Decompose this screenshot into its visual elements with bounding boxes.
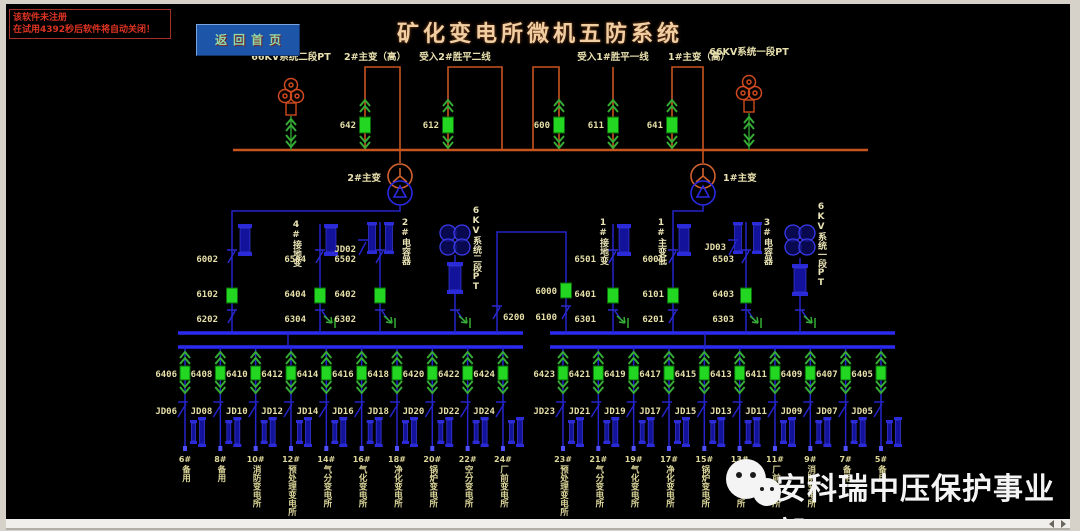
bay-pt-66kv-section2: 66KV系统二段PT bbox=[251, 51, 331, 150]
breaker-6402-label: 6402 bbox=[334, 290, 356, 300]
bay-pt-6kv-section1 bbox=[785, 225, 815, 333]
label-grounding-transformer-1: 1#接地变 bbox=[597, 218, 609, 265]
feeder-name-JD16: 16#气化变电所 bbox=[351, 455, 373, 508]
breaker-6409[interactable] bbox=[805, 366, 815, 380]
feeder-bay-JD16[interactable]: 6416JD16 bbox=[332, 347, 383, 451]
breaker-label: 6417 bbox=[639, 370, 661, 380]
jd-switch-label: JD18 bbox=[367, 407, 389, 417]
feeder-name-JD23: 23#预处理变电所 bbox=[552, 455, 574, 516]
breaker-642[interactable] bbox=[360, 117, 371, 133]
breaker-600-label: 600 bbox=[534, 121, 550, 131]
switch-6202-label: 6202 bbox=[196, 315, 218, 325]
feeder-number: 14# bbox=[315, 455, 337, 465]
feeder-symbol bbox=[662, 347, 690, 451]
breaker-label: 6423 bbox=[533, 370, 555, 380]
feeder-bay-JD21[interactable]: 6421JD21 bbox=[569, 347, 620, 451]
earth-switch-6301[interactable] bbox=[608, 310, 628, 328]
feeder-substation-name: 备用 bbox=[215, 465, 226, 482]
feeder-bay-JD15[interactable]: 6415JD15 bbox=[675, 347, 726, 451]
breaker-6411[interactable] bbox=[770, 366, 780, 380]
feeder-name-JD15: 15#锅炉变电所 bbox=[693, 455, 715, 508]
pt-66kv-1-icon bbox=[737, 76, 762, 100]
feeder-symbol bbox=[697, 347, 725, 451]
switch-6002-label: 6002 bbox=[196, 255, 218, 265]
jd-switch-label: JD24 bbox=[473, 407, 495, 417]
bay-bus-tie-66kv: 600 bbox=[533, 67, 565, 150]
breaker-label: 6414 bbox=[297, 370, 319, 380]
breaker-6101[interactable] bbox=[668, 288, 679, 303]
page-title: 矿化变电所微机五防系统 bbox=[200, 16, 880, 48]
breaker-6403[interactable] bbox=[741, 288, 752, 303]
pt-box bbox=[447, 262, 463, 294]
trial-warning: 该软件未注册 在试用4392秒后软件将自动关闭！ bbox=[9, 9, 171, 39]
breaker-label: 6420 bbox=[403, 370, 425, 380]
feeder-symbol bbox=[319, 347, 347, 451]
breaker-label: 6419 bbox=[604, 370, 626, 380]
feeder-symbol bbox=[874, 347, 902, 451]
feeder-name-JD22: 22#空分变电所 bbox=[457, 455, 479, 508]
breaker-6421[interactable] bbox=[593, 366, 603, 380]
breaker-6401-label: 6401 bbox=[574, 290, 596, 300]
breaker-6419[interactable] bbox=[629, 366, 639, 380]
feeder-substation-name: 预处理变电所 bbox=[558, 465, 569, 516]
breaker-6401[interactable] bbox=[608, 288, 619, 303]
feeder-name-JD08: 8#备用 bbox=[209, 455, 231, 482]
scroll-right-icon[interactable] bbox=[1061, 520, 1066, 528]
scroll-left-icon[interactable] bbox=[1049, 520, 1054, 528]
breaker-label: 6421 bbox=[569, 370, 591, 380]
feeder-name-JD10: 10#消防变电所 bbox=[245, 455, 267, 508]
feeder-bay-JD06[interactable]: 6406JD06 bbox=[155, 347, 206, 451]
capacitor-icon bbox=[384, 222, 394, 254]
jd-switch-label: JD19 bbox=[604, 407, 626, 417]
feeder-substation-name: 消防变电所 bbox=[250, 465, 261, 508]
transformer-1: 1#主变 bbox=[691, 164, 757, 205]
cabinet-icon bbox=[617, 224, 631, 256]
switch-6502-label: 6502 bbox=[334, 255, 356, 265]
transformer-1-label: 1#主变 bbox=[723, 172, 757, 184]
label-capacitor-3: 3#电容器 bbox=[761, 218, 773, 265]
jd-switch-label: JD06 bbox=[155, 407, 177, 417]
cabinet-icon bbox=[677, 224, 691, 256]
breaker-label: 6407 bbox=[816, 370, 838, 380]
pt-box bbox=[286, 103, 296, 115]
feeder-number: 23# bbox=[552, 455, 574, 465]
feeder-bay-JD11[interactable]: 6411JD11 bbox=[745, 347, 796, 451]
bay-label: 2#主变（高） bbox=[344, 51, 406, 63]
jd-switch-label: JD23 bbox=[533, 407, 555, 417]
pt-66kv-2-icon bbox=[279, 79, 304, 103]
feeder-name-JD17: 17#净化变电所 bbox=[658, 455, 680, 508]
breaker-label: 6406 bbox=[155, 370, 177, 380]
feeder-name-JD19: 19#气化变电所 bbox=[623, 455, 645, 508]
feeder-symbol bbox=[768, 347, 796, 451]
trial-warning-line2: 在试用4392秒后软件将自动关闭！ bbox=[13, 24, 167, 36]
breaker-6420[interactable] bbox=[427, 366, 437, 380]
feeder-number: 16# bbox=[351, 455, 373, 465]
feeder-symbol bbox=[839, 347, 867, 451]
switch-jd02-label: JD02 bbox=[334, 245, 356, 255]
feeder-bay-JD22[interactable]: 6422JD22 bbox=[438, 347, 489, 451]
pt-6kv-2-icon bbox=[440, 225, 470, 255]
feeder-bay-JD07[interactable]: 6407JD07 bbox=[816, 347, 867, 451]
breaker-612-label: 612 bbox=[423, 121, 439, 131]
breaker-label: 6424 bbox=[473, 370, 495, 380]
transformer-lv-winding-icon bbox=[691, 181, 715, 205]
feeder-substation-name: 空分变电所 bbox=[462, 465, 473, 508]
feeder-bay-JD08[interactable]: 6408JD08 bbox=[191, 347, 242, 451]
feeder-symbol bbox=[178, 347, 206, 451]
feeder-substation-name: 气分变电所 bbox=[321, 465, 332, 508]
feeder-symbol bbox=[355, 347, 383, 451]
jd-switch-label: JD20 bbox=[403, 407, 425, 417]
earth-switch-6301-label: 6301 bbox=[574, 315, 596, 325]
scada-canvas: 66KV系统二段PT 642 2#主变（高） 612 受入2#胜平二 bbox=[6, 4, 1070, 519]
feeder-symbol bbox=[627, 347, 655, 451]
breaker-6406[interactable] bbox=[180, 366, 190, 380]
breaker-label: 6416 bbox=[332, 370, 354, 380]
feeder-number: 22# bbox=[457, 455, 479, 465]
breaker-6424[interactable] bbox=[498, 366, 508, 380]
breaker-6102[interactable] bbox=[227, 288, 238, 303]
breaker-label: 6418 bbox=[367, 370, 389, 380]
breaker-6404-label: 6404 bbox=[284, 290, 306, 300]
bay-main-transformer-2-lv: 6002 6102 6202 bbox=[196, 224, 252, 325]
capacitor-icon bbox=[367, 222, 377, 254]
breaker-6403-label: 6403 bbox=[712, 290, 734, 300]
bay-main-transformer-2-hv: 642 2#主变（高） bbox=[340, 51, 406, 163]
bay-capacitor-2: JD02 6502 6402 6302 bbox=[334, 222, 395, 333]
breaker-6422[interactable] bbox=[463, 366, 473, 380]
jd-switch-label: JD05 bbox=[851, 407, 873, 417]
breaker-6423[interactable] bbox=[558, 366, 568, 380]
breaker-6418[interactable] bbox=[392, 366, 402, 380]
feeder-symbol bbox=[556, 347, 584, 451]
breaker-label: 6415 bbox=[675, 370, 697, 380]
breaker-641[interactable] bbox=[667, 117, 678, 133]
feeder-substation-name: 备用 bbox=[180, 465, 191, 482]
feeder-symbol bbox=[803, 347, 831, 451]
bay-label: 受入1#胜平一线 bbox=[577, 51, 649, 63]
breaker-600[interactable] bbox=[554, 117, 565, 133]
label-main-transformer-1-lv: 1#主变低 bbox=[655, 218, 667, 265]
jd-switch-label: JD21 bbox=[569, 407, 591, 417]
feeder-number: 8# bbox=[209, 455, 231, 465]
feeder-substation-name: 厂前变电所 bbox=[497, 465, 508, 508]
jd-switch-label: JD13 bbox=[710, 407, 732, 417]
switch-6100-label: 6100 bbox=[535, 313, 557, 323]
breaker-641-label: 641 bbox=[647, 121, 663, 131]
breaker-6000[interactable] bbox=[561, 283, 572, 298]
label-capacitor-2: 2#电容器 bbox=[399, 218, 411, 265]
breaker-label: 6411 bbox=[745, 370, 767, 380]
feeder-substation-name: 锅炉变电所 bbox=[427, 465, 438, 508]
feeder-bay-JD17[interactable]: 6417JD17 bbox=[639, 347, 690, 451]
horizontal-scrollbar[interactable] bbox=[6, 519, 1070, 530]
bay-label: 受入2#胜平二线 bbox=[419, 51, 491, 63]
label-grounding-transformer-4: 4#接地变 bbox=[290, 220, 302, 267]
feeder-substation-name: 气分变电所 bbox=[593, 465, 604, 508]
jd-switch-label: JD08 bbox=[191, 407, 213, 417]
switch-jd02[interactable] bbox=[358, 240, 368, 255]
switch-6200-label: 6200 bbox=[503, 313, 525, 323]
jd-switch-label: JD07 bbox=[816, 407, 838, 417]
breaker-6413[interactable] bbox=[735, 366, 745, 380]
jd-switch-label: JD17 bbox=[639, 407, 661, 417]
switch-6201-label: 6201 bbox=[642, 315, 664, 325]
feeder-name-JD20: 20#锅炉变电所 bbox=[421, 455, 443, 508]
earth-switch-6302-label: 6302 bbox=[334, 315, 356, 325]
feeder-number: 17# bbox=[658, 455, 680, 465]
feeder-number: 24# bbox=[492, 455, 514, 465]
jd-switch-label: JD10 bbox=[226, 407, 248, 417]
feeder-bay-JD13[interactable]: 6413JD13 bbox=[710, 347, 761, 451]
bay-bus-tie-6kv: 6200 6000 6100 bbox=[492, 232, 572, 333]
feeder-number: 21# bbox=[587, 455, 609, 465]
switch-6503-label: 6503 bbox=[712, 255, 734, 265]
feeder-number: 15# bbox=[693, 455, 715, 465]
feeder-symbol bbox=[284, 347, 312, 451]
earth-switch[interactable] bbox=[450, 310, 470, 328]
switch-jd03-label: JD03 bbox=[704, 243, 726, 253]
breaker-label: 6405 bbox=[851, 370, 873, 380]
breaker-6405[interactable] bbox=[876, 366, 886, 380]
label-pt-6kv-section1: 6KV系统一段PT bbox=[815, 202, 827, 288]
cabinet-icon bbox=[238, 224, 252, 256]
breaker-642-label: 642 bbox=[340, 121, 356, 131]
jd-switch-label: JD11 bbox=[745, 407, 767, 417]
feeder-substation-name: 气化变电所 bbox=[628, 465, 639, 508]
feeder-substation-name: 净化变电所 bbox=[391, 465, 402, 508]
jd-switch-label: JD15 bbox=[675, 407, 697, 417]
bay-incoming-line-1: 611 受入1#胜平一线 bbox=[577, 51, 649, 150]
feeder-name-JD12: 12#预处理变电所 bbox=[280, 455, 302, 516]
breaker-6102-label: 6102 bbox=[196, 290, 218, 300]
app-window: 66KV系统二段PT 642 2#主变（高） 612 受入2#胜平二 bbox=[0, 0, 1080, 531]
feeder-bay-JD18[interactable]: 6418JD18 bbox=[367, 347, 418, 451]
hv-66kv-section: 66KV系统二段PT 642 2#主变（高） 612 受入2#胜平二 bbox=[233, 46, 868, 205]
feeder-bay-JD09[interactable]: 6409JD09 bbox=[781, 347, 832, 451]
breaker-611[interactable] bbox=[608, 117, 619, 133]
feeder-number: 6# bbox=[174, 455, 196, 465]
breaker-6402[interactable] bbox=[375, 288, 386, 303]
feeder-bay-JD20[interactable]: 6420JD20 bbox=[403, 347, 454, 451]
feeder-bays: 6406JD066408JD086410JD106412JD126414JD14… bbox=[155, 347, 902, 451]
feeder-name-JD24: 24#厂前变电所 bbox=[492, 455, 514, 508]
bay-incoming-line-2: 612 受入2#胜平二线 bbox=[419, 51, 502, 150]
breaker-6414[interactable] bbox=[321, 366, 331, 380]
feeder-symbol bbox=[461, 347, 489, 451]
breaker-6412[interactable] bbox=[286, 366, 296, 380]
feeder-bay-JD10[interactable]: 6410JD10 bbox=[226, 347, 277, 451]
single-line-diagram: 66KV系统二段PT 642 2#主变（高） 612 受入2#胜平二 bbox=[6, 4, 1070, 519]
feeder-bay-JD12[interactable]: 6412JD12 bbox=[261, 347, 312, 451]
jd-switch-label: JD12 bbox=[261, 407, 283, 417]
earth-switch-6304-label: 6304 bbox=[284, 315, 306, 325]
feeder-number: 10# bbox=[245, 455, 267, 465]
capacitor-icon bbox=[733, 222, 743, 254]
feeder-symbol bbox=[591, 347, 619, 451]
breaker-6417[interactable] bbox=[664, 366, 674, 380]
trial-warning-line1: 该软件未注册 bbox=[13, 12, 167, 24]
breaker-6407[interactable] bbox=[841, 366, 851, 380]
breaker-6404[interactable] bbox=[315, 288, 326, 303]
feeder-number: 12# bbox=[280, 455, 302, 465]
earth-switch-6303[interactable] bbox=[741, 310, 761, 328]
feeder-substation-name: 气化变电所 bbox=[356, 465, 367, 508]
breaker-6416[interactable] bbox=[357, 366, 367, 380]
feeder-number: 18# bbox=[386, 455, 408, 465]
feeder-symbol bbox=[733, 347, 761, 451]
breaker-6415[interactable] bbox=[699, 366, 709, 380]
breaker-label: 6412 bbox=[261, 370, 283, 380]
feeder-bay-JD23[interactable]: 6423JD23 bbox=[533, 347, 584, 451]
jd-switch-label: JD09 bbox=[781, 407, 803, 417]
feeder-symbol bbox=[425, 347, 453, 451]
bay-main-transformer-1-hv: 641 1#主变（高） bbox=[647, 51, 730, 163]
label-pt-6kv-section2: 6KV系统二段PT bbox=[470, 206, 482, 292]
breaker-label: 6408 bbox=[191, 370, 213, 380]
pt-box bbox=[744, 100, 754, 112]
feeder-number: 19# bbox=[623, 455, 645, 465]
transformer-2-label: 2#主变 bbox=[347, 172, 381, 184]
feeder-substation-name: 预处理变电所 bbox=[285, 465, 296, 516]
feeder-symbol bbox=[249, 347, 277, 451]
breaker-6410[interactable] bbox=[251, 366, 261, 380]
breaker-612[interactable] bbox=[443, 117, 454, 133]
feeder-number: 20# bbox=[421, 455, 443, 465]
breaker-6408[interactable] bbox=[215, 366, 225, 380]
breaker-label: 6422 bbox=[438, 370, 460, 380]
earth-switch[interactable] bbox=[795, 310, 815, 328]
feeder-name-JD21: 21#气分变电所 bbox=[587, 455, 609, 508]
feeder-substation-name: 净化变电所 bbox=[663, 465, 674, 508]
feeder-name-JD14: 14#气分变电所 bbox=[315, 455, 337, 508]
earth-switch-6302[interactable] bbox=[375, 310, 395, 328]
transformer-2: 2#主变 bbox=[347, 164, 412, 205]
breaker-611-label: 611 bbox=[588, 121, 604, 131]
switch-6501-label: 6501 bbox=[574, 255, 596, 265]
breaker-6101-label: 6101 bbox=[642, 290, 664, 300]
jd-switch-label: JD16 bbox=[332, 407, 354, 417]
feeder-symbol bbox=[496, 347, 524, 451]
feeder-name-JD06: 6#备用 bbox=[174, 455, 196, 482]
mv-6kv-section: 6002 6102 6202 6504 6404 6304 bbox=[178, 205, 895, 347]
feeder-name-JD18: 18#净化变电所 bbox=[386, 455, 408, 508]
breaker-label: 6413 bbox=[710, 370, 732, 380]
breaker-label: 6409 bbox=[781, 370, 803, 380]
bay-pt-6kv-section2 bbox=[440, 225, 470, 333]
jd-switch-label: JD14 bbox=[297, 407, 319, 417]
feeder-bay-JD19[interactable]: 6419JD19 bbox=[604, 347, 655, 451]
breaker-6000-label: 6000 bbox=[535, 287, 557, 297]
pt-6kv-1-icon bbox=[785, 225, 815, 255]
feeder-symbol bbox=[390, 347, 418, 451]
bay-capacitor-3: JD03 6503 6403 6303 bbox=[704, 222, 762, 333]
pt-box bbox=[792, 264, 808, 296]
feeder-substation-name: 锅炉变电所 bbox=[699, 465, 710, 508]
jd-switch-label: JD22 bbox=[438, 407, 460, 417]
feeder-bay-JD05[interactable]: 6405JD05 bbox=[851, 347, 902, 451]
transformer-lv-winding-icon bbox=[388, 181, 412, 205]
breaker-label: 6410 bbox=[226, 370, 248, 380]
feeder-bay-JD14[interactable]: 6414JD14 bbox=[297, 347, 348, 451]
feeder-bay-JD24[interactable]: 6424JD24 bbox=[473, 347, 524, 451]
earth-switch-6304[interactable] bbox=[315, 310, 335, 328]
watermark-text: 安科瑞中压保护事业部 bbox=[776, 464, 1070, 519]
feeder-symbol bbox=[213, 347, 241, 451]
earth-switch-6303-label: 6303 bbox=[712, 315, 734, 325]
